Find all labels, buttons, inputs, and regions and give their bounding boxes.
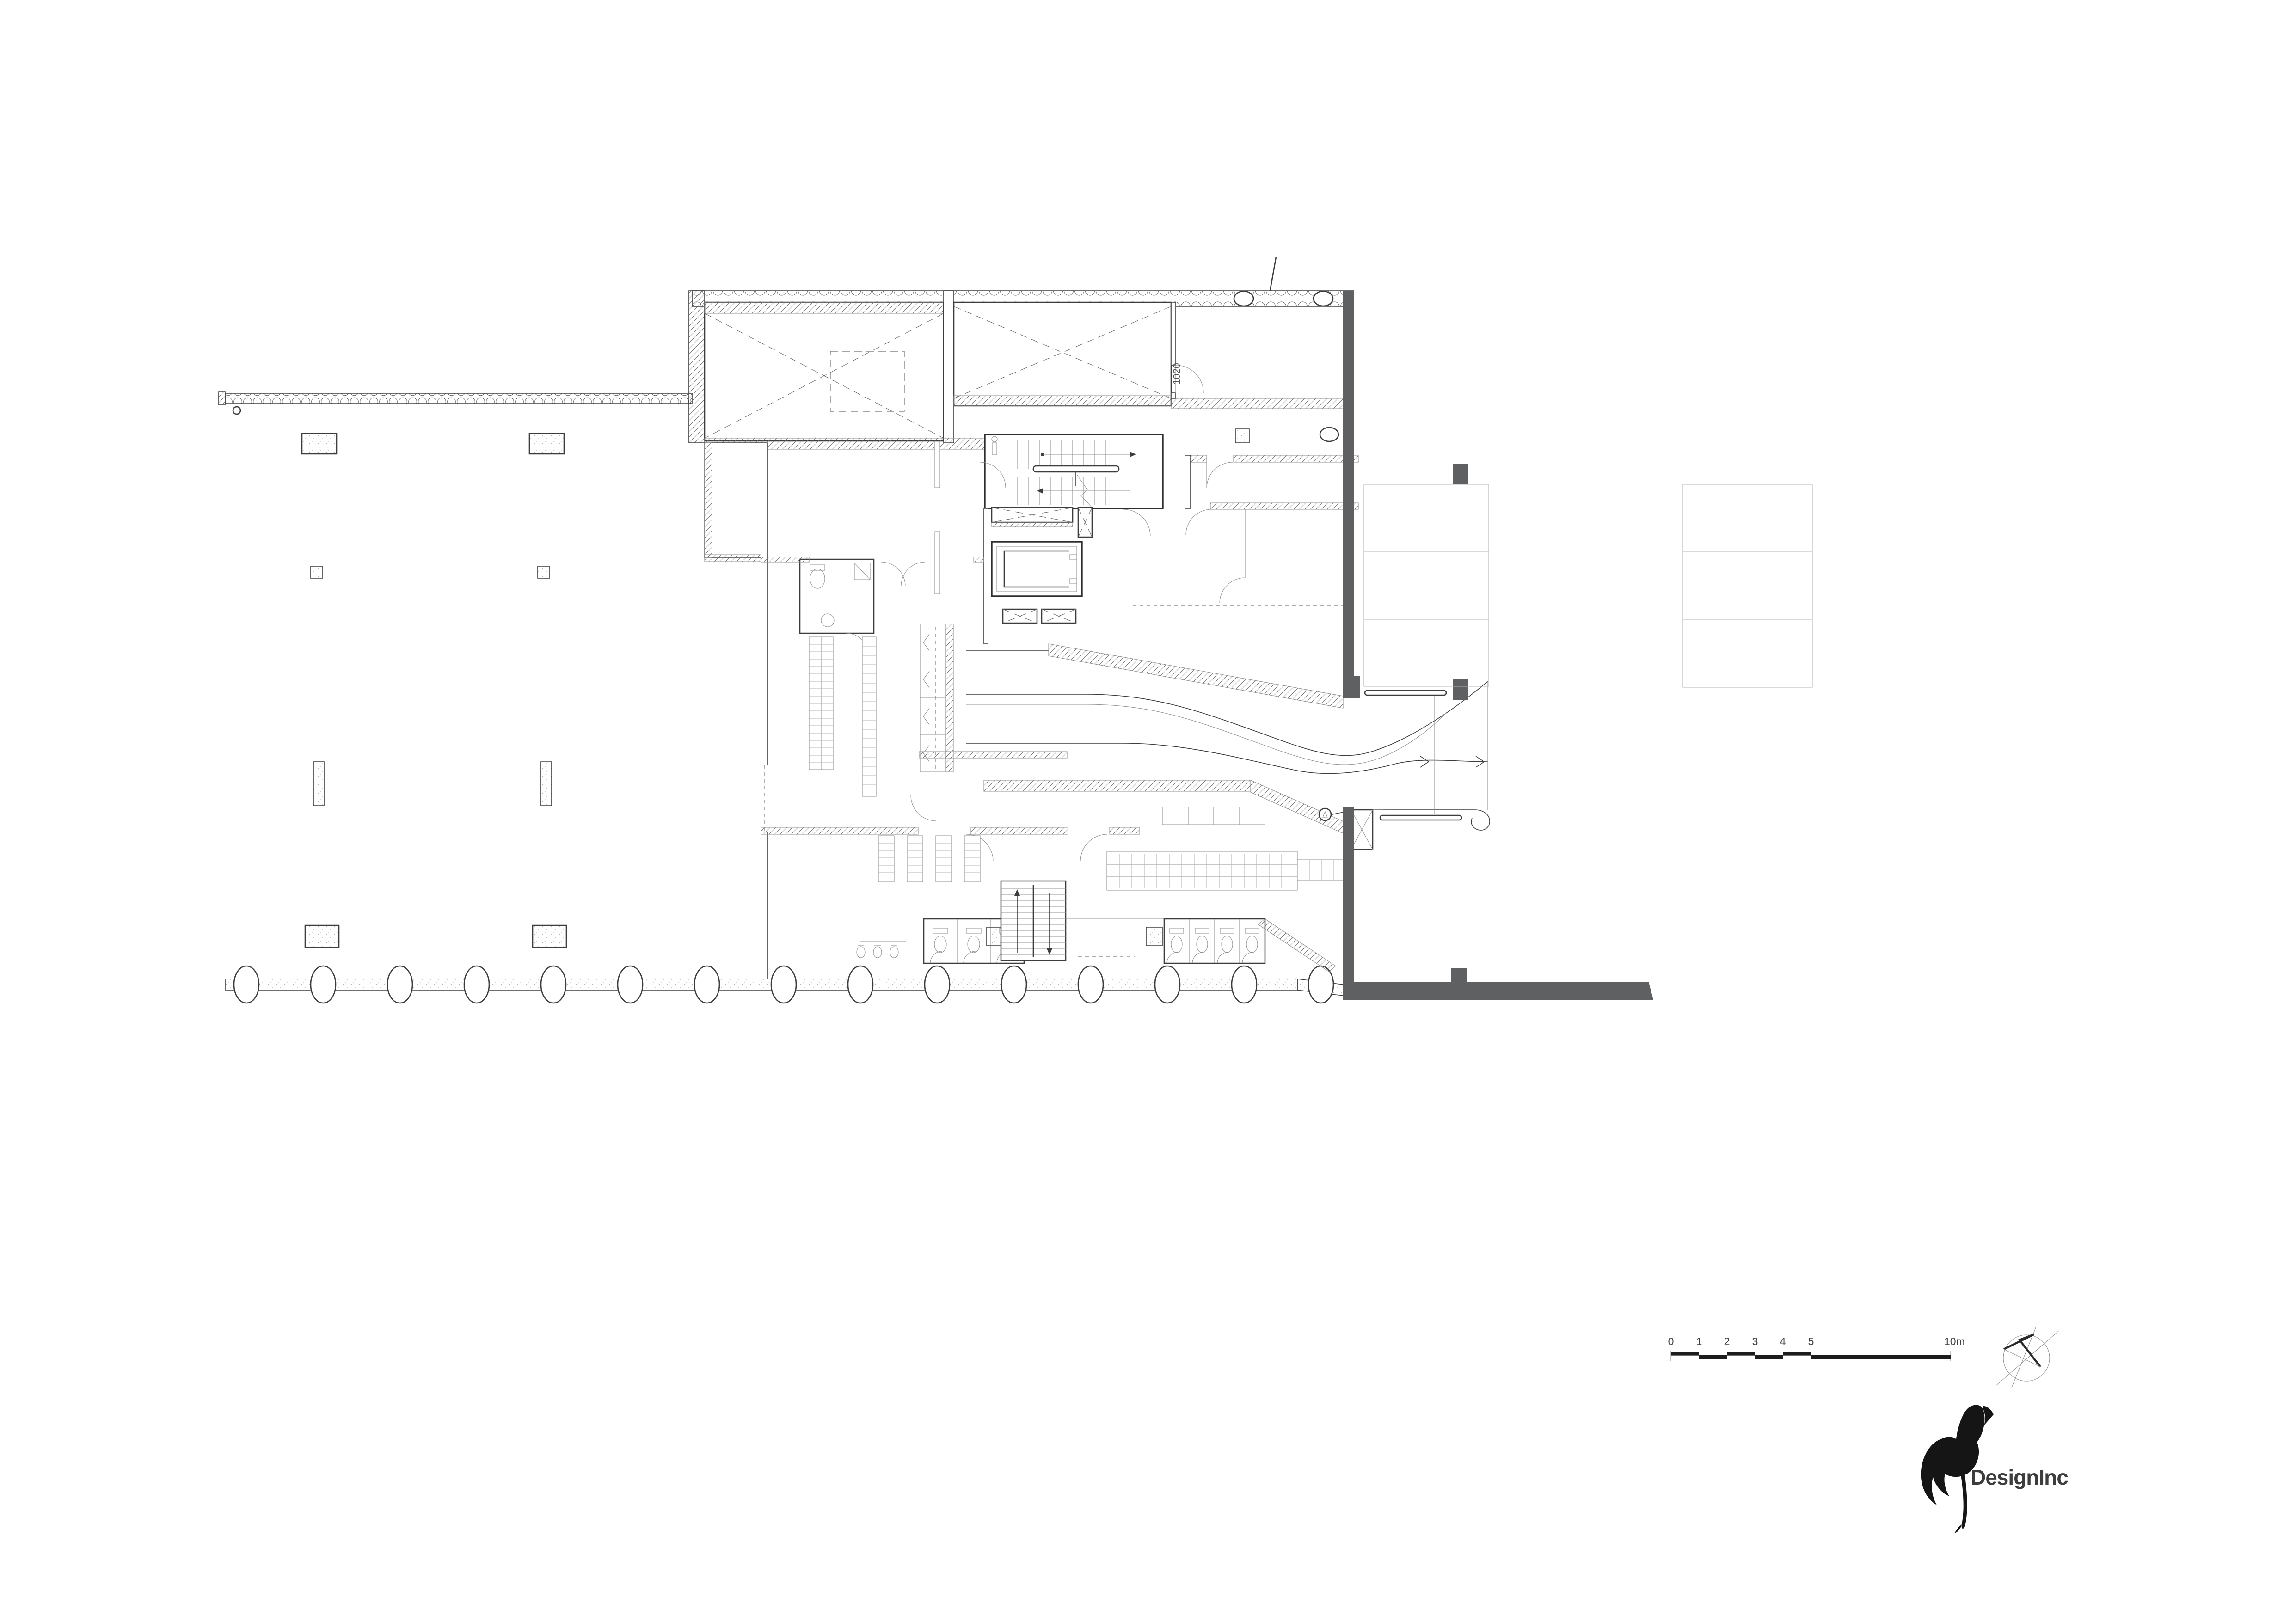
scale-label-0: 0	[1668, 1335, 1674, 1347]
bottom-stair	[1001, 881, 1066, 960]
toilet-block	[857, 881, 1336, 972]
handrail-bar	[1365, 691, 1446, 695]
scale-label-5: 5	[1808, 1335, 1814, 1347]
urinals	[857, 946, 898, 958]
retail-fixtures	[761, 807, 1345, 890]
column-row	[234, 966, 1333, 1003]
drawing-sheet: 1020	[0, 0, 2296, 1621]
parking-bays	[1364, 484, 1812, 687]
core-stair	[705, 434, 1211, 644]
dark-boundary-walls	[1343, 291, 1653, 1000]
toilet-stalls-right	[1164, 919, 1265, 963]
door-tag: 1020	[1172, 363, 1182, 385]
scale-label-10m: 10m	[1944, 1335, 1965, 1347]
scale-label-4: 4	[1780, 1335, 1786, 1347]
carpark-zone	[219, 392, 1343, 1003]
floor-plan-canvas: 1020	[0, 0, 2296, 1621]
north-arrow-icon	[1996, 1327, 2059, 1388]
scale-bar: 0 1 2 3 4 5 10m	[1668, 1335, 1965, 1361]
scale-label-3: 3	[1752, 1335, 1758, 1347]
designinc-logo: DesignInc	[1921, 1405, 2069, 1533]
scale-label-1: 1	[1696, 1335, 1702, 1347]
shelving-grid	[1107, 851, 1345, 890]
stall-fronts	[920, 624, 953, 772]
fixture-strips	[878, 836, 980, 882]
plant-rooms	[689, 257, 1354, 449]
logo-text: DesignInc	[1971, 1465, 2068, 1489]
gondola-shelving	[809, 637, 876, 796]
scale-label-2: 2	[1724, 1335, 1730, 1347]
handrail-bar	[1380, 815, 1461, 820]
elevator	[992, 542, 1082, 596]
